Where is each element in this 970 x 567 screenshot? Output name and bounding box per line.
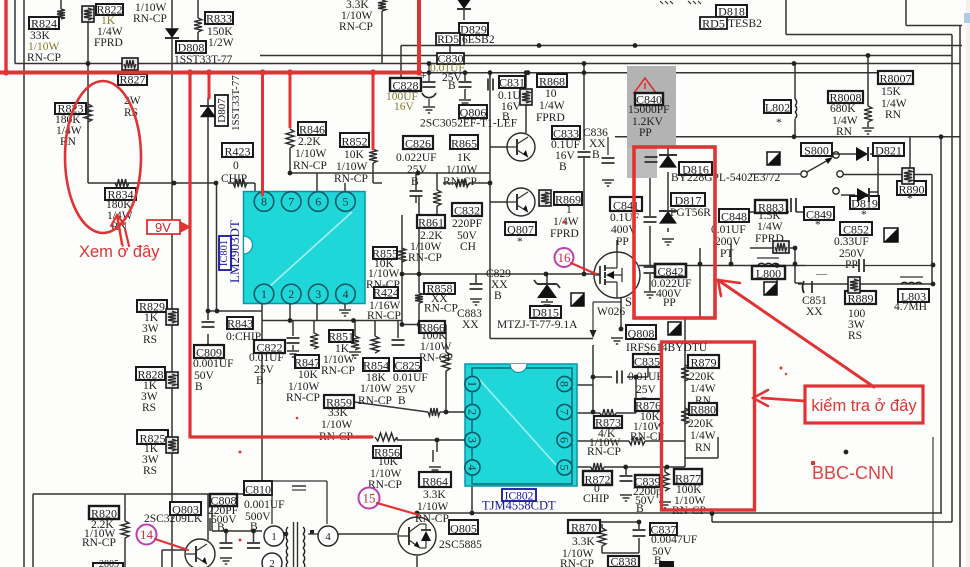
- svg-text:500V: 500V: [245, 511, 271, 523]
- svg-text:1K: 1K: [457, 152, 472, 164]
- svg-text:*: *: [517, 236, 523, 248]
- svg-text:10K: 10K: [344, 149, 365, 161]
- svg-text:0.022UF: 0.022UF: [396, 152, 437, 164]
- svg-text:CHIP: CHIP: [583, 493, 609, 505]
- svg-text:C852: C852: [843, 223, 869, 237]
- svg-text:16V: 16V: [394, 101, 415, 113]
- svg-text:1/4W: 1/4W: [553, 216, 579, 228]
- svg-text:2805: 2805: [99, 559, 119, 567]
- svg-text:B: B: [256, 375, 264, 387]
- svg-text:1/10W: 1/10W: [417, 501, 448, 513]
- svg-text:CH: CH: [460, 241, 476, 253]
- svg-text:CHIP: CHIP: [221, 173, 247, 185]
- svg-text:1/4W: 1/4W: [690, 383, 716, 395]
- svg-text:2: 2: [465, 409, 479, 415]
- svg-text:D808: D808: [178, 41, 205, 55]
- svg-text:PP: PP: [639, 127, 652, 139]
- svg-text:4: 4: [343, 287, 349, 301]
- svg-text:RS: RS: [143, 334, 157, 346]
- svg-text:1/10W: 1/10W: [446, 164, 477, 176]
- svg-text:L802: L802: [765, 101, 790, 115]
- svg-text:R879: R879: [690, 356, 716, 370]
- svg-text:R833: R833: [206, 12, 232, 26]
- svg-text:RN-CP: RN-CP: [286, 392, 320, 404]
- svg-text:RN-CP: RN-CP: [424, 303, 458, 315]
- svg-text:RN-CP: RN-CP: [560, 558, 594, 567]
- svg-text:6: 6: [558, 437, 572, 443]
- svg-text:B: B: [636, 503, 644, 515]
- svg-text:200V: 200V: [715, 236, 741, 248]
- svg-text:+: +: [420, 68, 427, 82]
- svg-text:L800: L800: [756, 267, 781, 281]
- svg-text:FPRD: FPRD: [94, 37, 123, 49]
- svg-text:B: B: [592, 149, 600, 161]
- svg-text:FPRD: FPRD: [536, 112, 565, 124]
- svg-text:C838: C838: [610, 555, 636, 567]
- svg-text:RN-CP: RN-CP: [293, 160, 327, 172]
- svg-text:1/10W: 1/10W: [321, 419, 352, 431]
- svg-text:5: 5: [343, 195, 349, 209]
- svg-text:Q805: Q805: [450, 522, 477, 536]
- svg-text:RS: RS: [143, 465, 157, 477]
- svg-text:1SST33T-77: 1SST33T-77: [174, 54, 233, 66]
- svg-text:B: B: [195, 381, 203, 393]
- svg-text:1/4W: 1/4W: [757, 221, 783, 233]
- svg-text:RS: RS: [142, 402, 156, 414]
- svg-text:R864: R864: [422, 475, 448, 489]
- svg-text:2: 2: [269, 558, 275, 567]
- svg-text:PGT56R: PGT56R: [670, 207, 711, 219]
- svg-text:C826: C826: [405, 137, 431, 151]
- svg-text:XX: XX: [462, 319, 479, 331]
- svg-text:0.001UF: 0.001UF: [193, 358, 234, 370]
- svg-text:PT: PT: [720, 248, 733, 260]
- svg-text:10K: 10K: [378, 456, 399, 468]
- svg-text:C842: C842: [657, 265, 683, 279]
- svg-text:0: 0: [233, 160, 239, 172]
- svg-text:1: 1: [566, 204, 572, 216]
- svg-text:15K: 15K: [881, 86, 902, 98]
- svg-text:RN-CP: RN-CP: [82, 537, 116, 549]
- svg-text:C835: C835: [634, 355, 660, 369]
- svg-text:B: B: [411, 176, 419, 188]
- svg-text:RN-CP: RN-CP: [358, 395, 392, 407]
- svg-text:C825: C825: [394, 359, 420, 373]
- svg-text:RN-CP: RN-CP: [587, 446, 621, 458]
- svg-text:TESB2: TESB2: [728, 18, 762, 30]
- svg-text:B: B: [250, 521, 258, 533]
- svg-text:C848: C848: [721, 210, 747, 224]
- svg-text:RN-CP: RN-CP: [133, 13, 167, 25]
- svg-text:B: B: [494, 290, 502, 302]
- svg-text:15000PF: 15000PF: [628, 104, 670, 116]
- svg-text:25V: 25V: [407, 164, 428, 176]
- svg-text:R852: R852: [341, 135, 367, 149]
- svg-text:0.01UF: 0.01UF: [628, 371, 663, 383]
- svg-text:0.33UF: 0.33UF: [834, 236, 869, 248]
- svg-text:Xem ở đây: Xem ở đây: [79, 243, 160, 261]
- svg-text:33K: 33K: [328, 407, 349, 419]
- svg-text:B: B: [217, 522, 225, 534]
- svg-text:*: *: [776, 117, 782, 129]
- svg-text:4.7MH: 4.7MH: [894, 301, 927, 313]
- svg-text:RN-CP: RN-CP: [321, 365, 355, 377]
- svg-text:BBC-CNN: BBC-CNN: [812, 463, 894, 483]
- svg-text:7: 7: [558, 409, 572, 415]
- svg-text:220K: 220K: [688, 418, 714, 430]
- svg-text:RN: RN: [60, 136, 77, 148]
- svg-text:2.2K: 2.2K: [298, 136, 321, 148]
- svg-text:Q807: Q807: [507, 223, 534, 237]
- svg-text:S: S: [625, 295, 632, 309]
- svg-text:R847: R847: [294, 356, 320, 370]
- svg-text:1: 1: [261, 287, 267, 301]
- svg-text:1SST33T-77: 1SST33T-77: [230, 75, 242, 131]
- svg-text:3: 3: [465, 437, 479, 443]
- svg-text:4: 4: [325, 531, 331, 543]
- svg-text:C810: C810: [245, 483, 271, 497]
- svg-text:10: 10: [545, 88, 557, 100]
- svg-text:C832: C832: [454, 204, 480, 218]
- svg-text:RN: RN: [885, 109, 902, 121]
- svg-text:8: 8: [558, 381, 572, 387]
- svg-text:RN: RN: [695, 442, 712, 454]
- svg-text:3.3K: 3.3K: [572, 536, 595, 548]
- svg-text:0.01UF: 0.01UF: [393, 372, 428, 384]
- svg-text:S800: S800: [804, 144, 829, 158]
- svg-text:—: —: [815, 268, 828, 280]
- svg-text:15: 15: [363, 491, 376, 506]
- svg-text:MTZJ-T-77-9.1A: MTZJ-T-77-9.1A: [497, 319, 578, 331]
- svg-text:25V: 25V: [636, 384, 657, 396]
- svg-text:kiểm tra ở đây: kiểm tra ở đây: [811, 397, 917, 415]
- svg-text:R827: R827: [119, 73, 145, 87]
- svg-text:R880: R880: [690, 403, 716, 417]
- svg-text:RN-CP: RN-CP: [27, 52, 61, 64]
- svg-text:0.0047UF: 0.0047UF: [651, 534, 697, 546]
- svg-text:*: *: [815, 219, 821, 231]
- svg-text:1/10W: 1/10W: [295, 148, 326, 160]
- svg-text:0.001UF: 0.001UF: [244, 499, 285, 511]
- svg-text:R824: R824: [31, 17, 57, 31]
- svg-text:1/2W: 1/2W: [208, 37, 234, 49]
- svg-text:B: B: [448, 80, 456, 92]
- svg-text:2: 2: [288, 287, 294, 301]
- svg-text:PP: PP: [663, 297, 676, 309]
- svg-text:D817: D817: [675, 194, 702, 208]
- svg-text:IRFS614BYDTU: IRFS614BYDTU: [626, 342, 708, 354]
- svg-text:*: *: [907, 193, 913, 205]
- svg-text:RS: RS: [848, 330, 862, 342]
- svg-text:PP: PP: [616, 236, 629, 248]
- svg-text:2SC3052EF-T1-LEF: 2SC3052EF-T1-LEF: [420, 118, 517, 130]
- svg-text:RN-CP: RN-CP: [367, 310, 401, 322]
- svg-text:B: B: [559, 161, 567, 173]
- svg-text:*: *: [861, 209, 867, 221]
- svg-text:R854: R854: [363, 359, 389, 373]
- svg-text:R861: R861: [418, 216, 444, 230]
- svg-text:R870: R870: [571, 521, 597, 535]
- svg-text:1/10W: 1/10W: [360, 383, 391, 395]
- svg-text:D821: D821: [875, 144, 902, 158]
- svg-text:3.3K: 3.3K: [423, 489, 446, 501]
- svg-text:B: B: [398, 395, 406, 407]
- svg-text:RN-CP: RN-CP: [630, 431, 664, 443]
- svg-text:R8007: R8007: [879, 72, 911, 86]
- svg-text:1/4W: 1/4W: [539, 100, 565, 112]
- svg-text:5: 5: [558, 465, 572, 471]
- svg-text:Q808: Q808: [628, 327, 655, 341]
- svg-text:TJM4558CDT: TJM4558CDT: [482, 499, 556, 513]
- svg-text:RN-CP: RN-CP: [419, 352, 453, 364]
- svg-text:R423: R423: [224, 145, 250, 159]
- svg-text:D815: D815: [532, 306, 559, 320]
- svg-text:FPRD: FPRD: [550, 228, 579, 240]
- svg-text:W026: W026: [597, 306, 625, 318]
- svg-text:220K: 220K: [689, 371, 715, 383]
- svg-text:680K: 680K: [830, 103, 856, 115]
- svg-text:RN-CP: RN-CP: [334, 173, 368, 185]
- svg-text:R843: R843: [227, 317, 253, 331]
- svg-text:RD5: RD5: [437, 34, 459, 46]
- svg-text:R846: R846: [299, 123, 325, 137]
- svg-text:1: 1: [271, 531, 277, 543]
- svg-text:14: 14: [140, 527, 154, 542]
- svg-text:RN-CP: RN-CP: [339, 21, 373, 33]
- svg-text:R424: R424: [373, 286, 399, 300]
- svg-text:8: 8: [261, 195, 267, 209]
- svg-text:10K: 10K: [298, 369, 319, 381]
- svg-text:R868: R868: [539, 75, 565, 89]
- svg-text:6ESB2: 6ESB2: [462, 34, 495, 46]
- svg-text:220PF: 220PF: [452, 218, 482, 230]
- svg-text:0.01UF: 0.01UF: [249, 352, 284, 364]
- svg-text:R851: R851: [328, 330, 354, 344]
- svg-text:16: 16: [558, 250, 572, 265]
- svg-text:RD5: RD5: [702, 17, 725, 31]
- svg-text:1/4W: 1/4W: [690, 430, 716, 442]
- svg-text:1: 1: [465, 381, 479, 387]
- svg-text:3: 3: [315, 287, 321, 301]
- svg-text:R865: R865: [451, 137, 477, 151]
- svg-text:RN-CP: RN-CP: [408, 252, 442, 264]
- svg-text:RN-CP: RN-CP: [443, 176, 477, 188]
- svg-text:LM2903DT: LM2903DT: [227, 220, 242, 283]
- svg-text:RN: RN: [836, 126, 853, 138]
- svg-text:2SC3209LK: 2SC3209LK: [144, 513, 203, 525]
- svg-text:2SC5885: 2SC5885: [439, 539, 482, 551]
- svg-text:7: 7: [288, 195, 294, 209]
- svg-text:C831: C831: [499, 76, 525, 90]
- svg-text:6: 6: [315, 195, 321, 209]
- svg-text:1/10W: 1/10W: [336, 161, 367, 173]
- svg-text:D807: D807: [216, 98, 228, 123]
- svg-text:XX: XX: [806, 306, 823, 318]
- svg-text:9V: 9V: [155, 220, 171, 235]
- svg-text:4: 4: [465, 465, 479, 471]
